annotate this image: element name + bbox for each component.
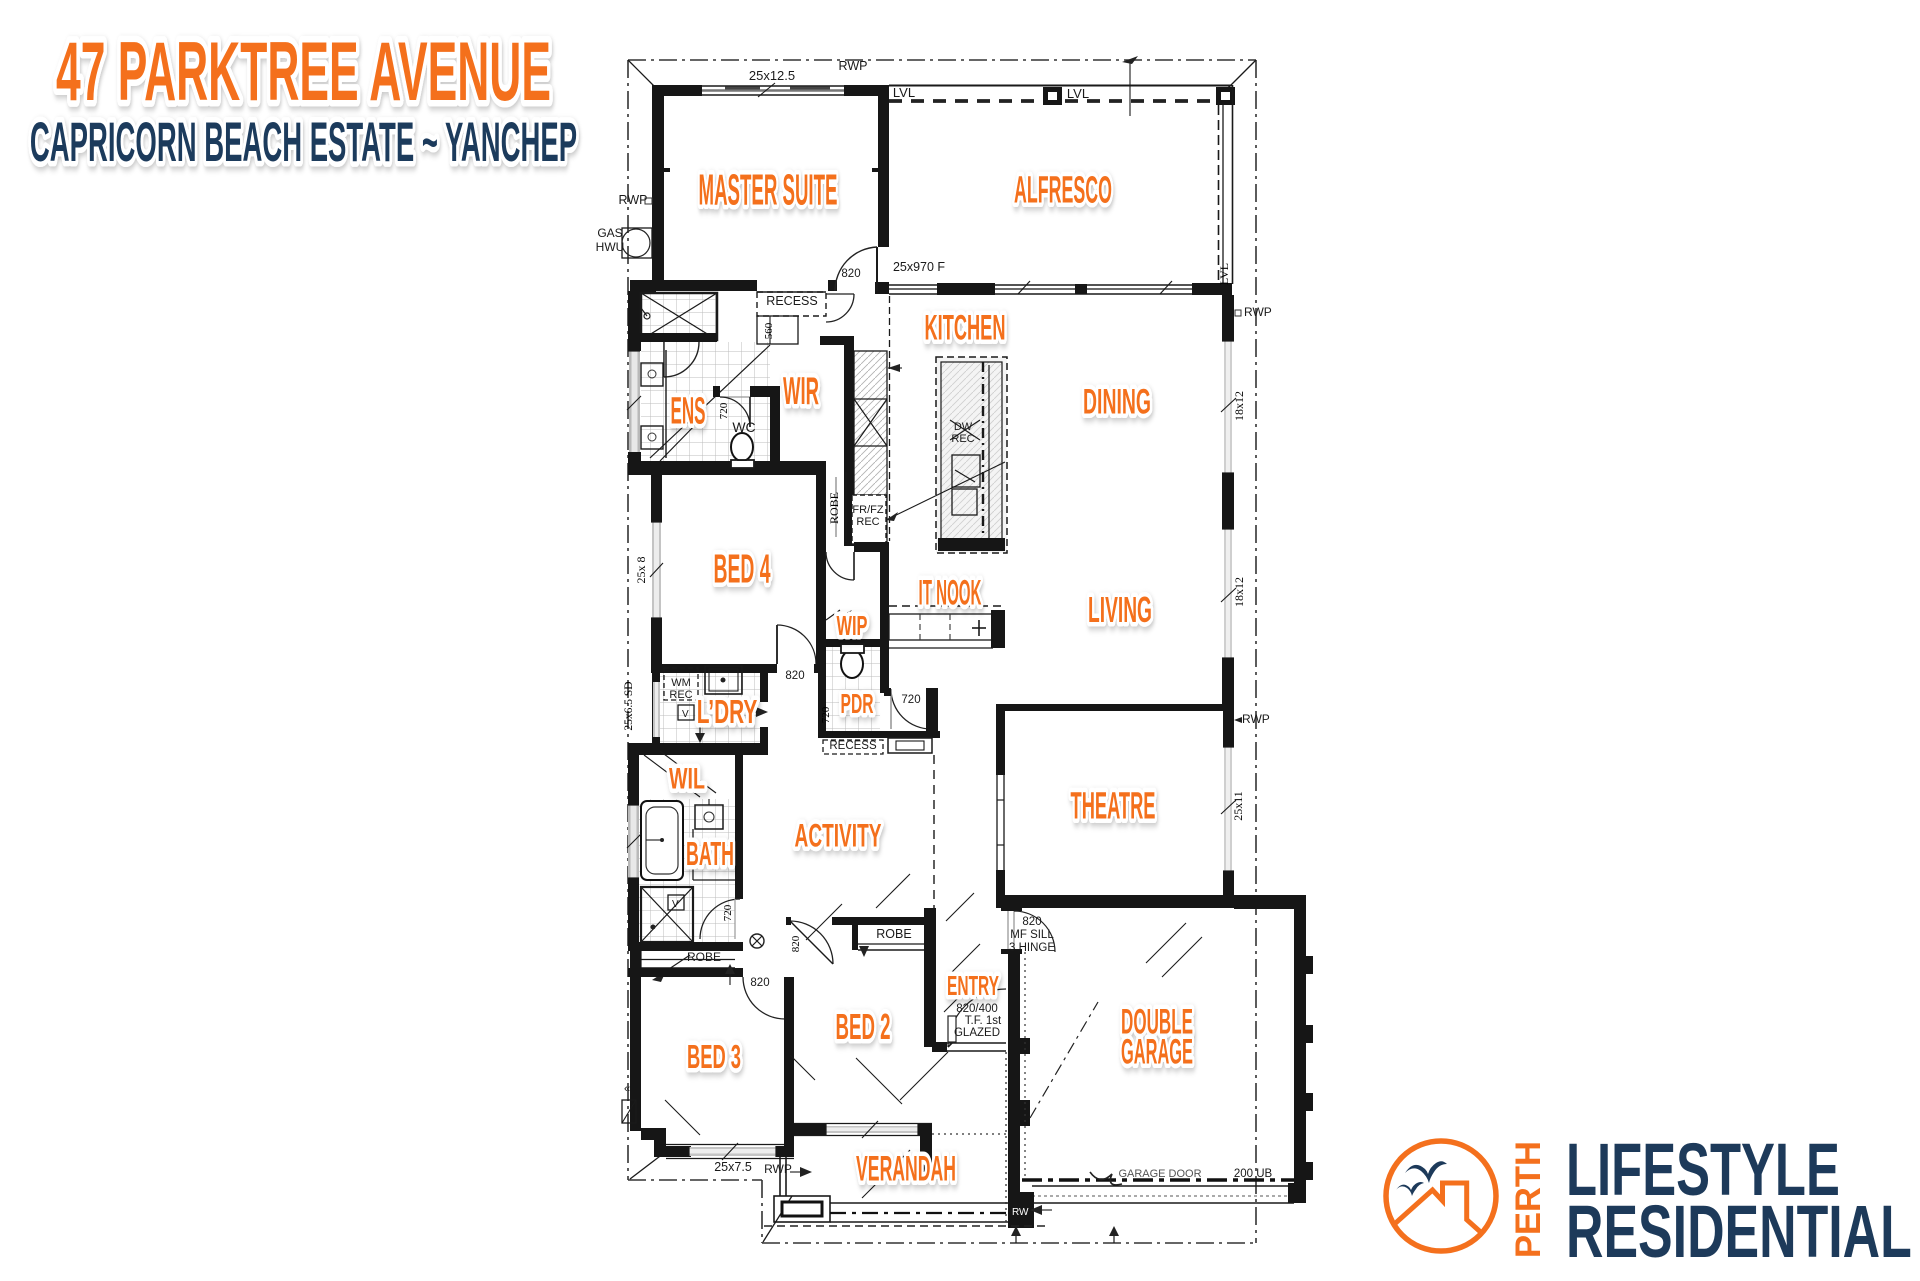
svg-text:DW: DW [954, 421, 973, 433]
svg-text:18x12: 18x12 [1232, 391, 1246, 421]
svg-text:25x 8: 25x 8 [634, 557, 648, 584]
svg-text:LVL: LVL [1217, 263, 1231, 285]
svg-text:CAPRICORN BEACH ESTATE ~ YANCH: CAPRICORN BEACH ESTATE ~ YANCHEP [30, 112, 577, 174]
svg-text:DINING: DINING [1083, 381, 1151, 421]
svg-text:T.F. 1st: T.F. 1st [965, 1015, 1002, 1027]
svg-text:MASTER SUITE: MASTER SUITE [699, 167, 838, 215]
svg-text:820: 820 [841, 268, 860, 280]
svg-text:820: 820 [790, 935, 802, 952]
svg-text:3 HINGE: 3 HINGE [1009, 942, 1055, 954]
svg-text:HWU: HWU [596, 240, 625, 254]
svg-text:PDR: PDR [841, 688, 874, 719]
svg-text:BED 4: BED 4 [714, 545, 771, 591]
svg-text:GAS: GAS [597, 226, 622, 240]
svg-text:RECESS: RECESS [766, 294, 817, 308]
svg-text:L’DRY: L’DRY [697, 693, 758, 730]
svg-text:ALFRESCO: ALFRESCO [1014, 169, 1112, 211]
svg-text:REC: REC [669, 689, 692, 701]
svg-text:VERANDAH: VERANDAH [856, 1149, 956, 1188]
svg-text:WC: WC [732, 419, 755, 435]
svg-text:RWP: RWP [764, 1162, 792, 1176]
svg-text:RECESS: RECESS [829, 740, 877, 752]
svg-text:LVL: LVL [893, 85, 915, 100]
svg-text:25x7.5: 25x7.5 [714, 1160, 752, 1174]
svg-text:GARAGE DOOR: GARAGE DOOR [1118, 1168, 1201, 1180]
svg-text:25x970 F: 25x970 F [893, 260, 945, 274]
svg-text:KITCHEN: KITCHEN [925, 308, 1006, 347]
svg-text:RWP: RWP [619, 193, 648, 207]
svg-text:REC: REC [856, 516, 879, 528]
svg-text:18x12: 18x12 [1232, 577, 1246, 607]
svg-text:820: 820 [750, 977, 769, 989]
svg-text:820: 820 [785, 670, 804, 682]
svg-text:THEATRE: THEATRE [1071, 785, 1156, 827]
svg-text:ENS: ENS [671, 391, 706, 432]
svg-text:720: 720 [901, 694, 920, 706]
svg-text:25x6.5 SD: 25x6.5 SD [623, 681, 635, 730]
svg-text:BATH: BATH [686, 835, 734, 872]
svg-text:RWP: RWP [1244, 305, 1272, 319]
svg-text:720: 720 [722, 904, 734, 921]
svg-text:RWP: RWP [1242, 712, 1270, 726]
svg-text:V: V [682, 709, 689, 720]
svg-text:RESIDENTIAL: RESIDENTIAL [1566, 1190, 1912, 1273]
svg-text:V: V [672, 899, 679, 910]
svg-text:ENTRY: ENTRY [947, 970, 999, 1001]
svg-text:BED 2: BED 2 [836, 1008, 891, 1048]
svg-text:ROBE: ROBE [876, 927, 911, 941]
svg-text:PERTH: PERTH [1510, 1141, 1548, 1258]
svg-text:GLAZED: GLAZED [954, 1027, 1000, 1039]
svg-text:820/400: 820/400 [956, 1003, 998, 1015]
svg-text:720: 720 [820, 706, 832, 723]
svg-text:LVL: LVL [1067, 86, 1089, 101]
svg-text:25x12.5: 25x12.5 [749, 68, 795, 83]
svg-text:GARAGE: GARAGE [1121, 1032, 1193, 1072]
svg-text:WIR: WIR [783, 369, 819, 412]
svg-text:820: 820 [1022, 916, 1041, 928]
svg-text:LIVING: LIVING [1088, 591, 1152, 631]
svg-text:RW: RW [1012, 1207, 1029, 1218]
svg-text:FR/FZ: FR/FZ [852, 504, 883, 516]
svg-text:560: 560 [763, 322, 775, 339]
svg-text:200 UB: 200 UB [1234, 1168, 1273, 1180]
svg-text:ACTIVITY: ACTIVITY [795, 817, 882, 853]
svg-text:BED 3: BED 3 [687, 1038, 741, 1075]
svg-text:47 PARKTREE AVENUE: 47 PARKTREE AVENUE [56, 25, 551, 119]
svg-text:WM: WM [671, 677, 691, 689]
svg-text:720: 720 [718, 402, 730, 419]
svg-text:WIP: WIP [837, 609, 868, 641]
svg-text:ROBE: ROBE [687, 950, 721, 964]
svg-text:RWP: RWP [839, 59, 868, 73]
svg-text:REC: REC [951, 433, 974, 445]
svg-text:25x11: 25x11 [1231, 791, 1245, 821]
svg-text:IT NOOK: IT NOOK [919, 573, 982, 612]
svg-text:ROBE: ROBE [827, 492, 841, 524]
svg-text:WIL: WIL [669, 763, 705, 796]
svg-text:MF SILL: MF SILL [1010, 929, 1054, 941]
svg-text:«: « [624, 1083, 630, 1095]
